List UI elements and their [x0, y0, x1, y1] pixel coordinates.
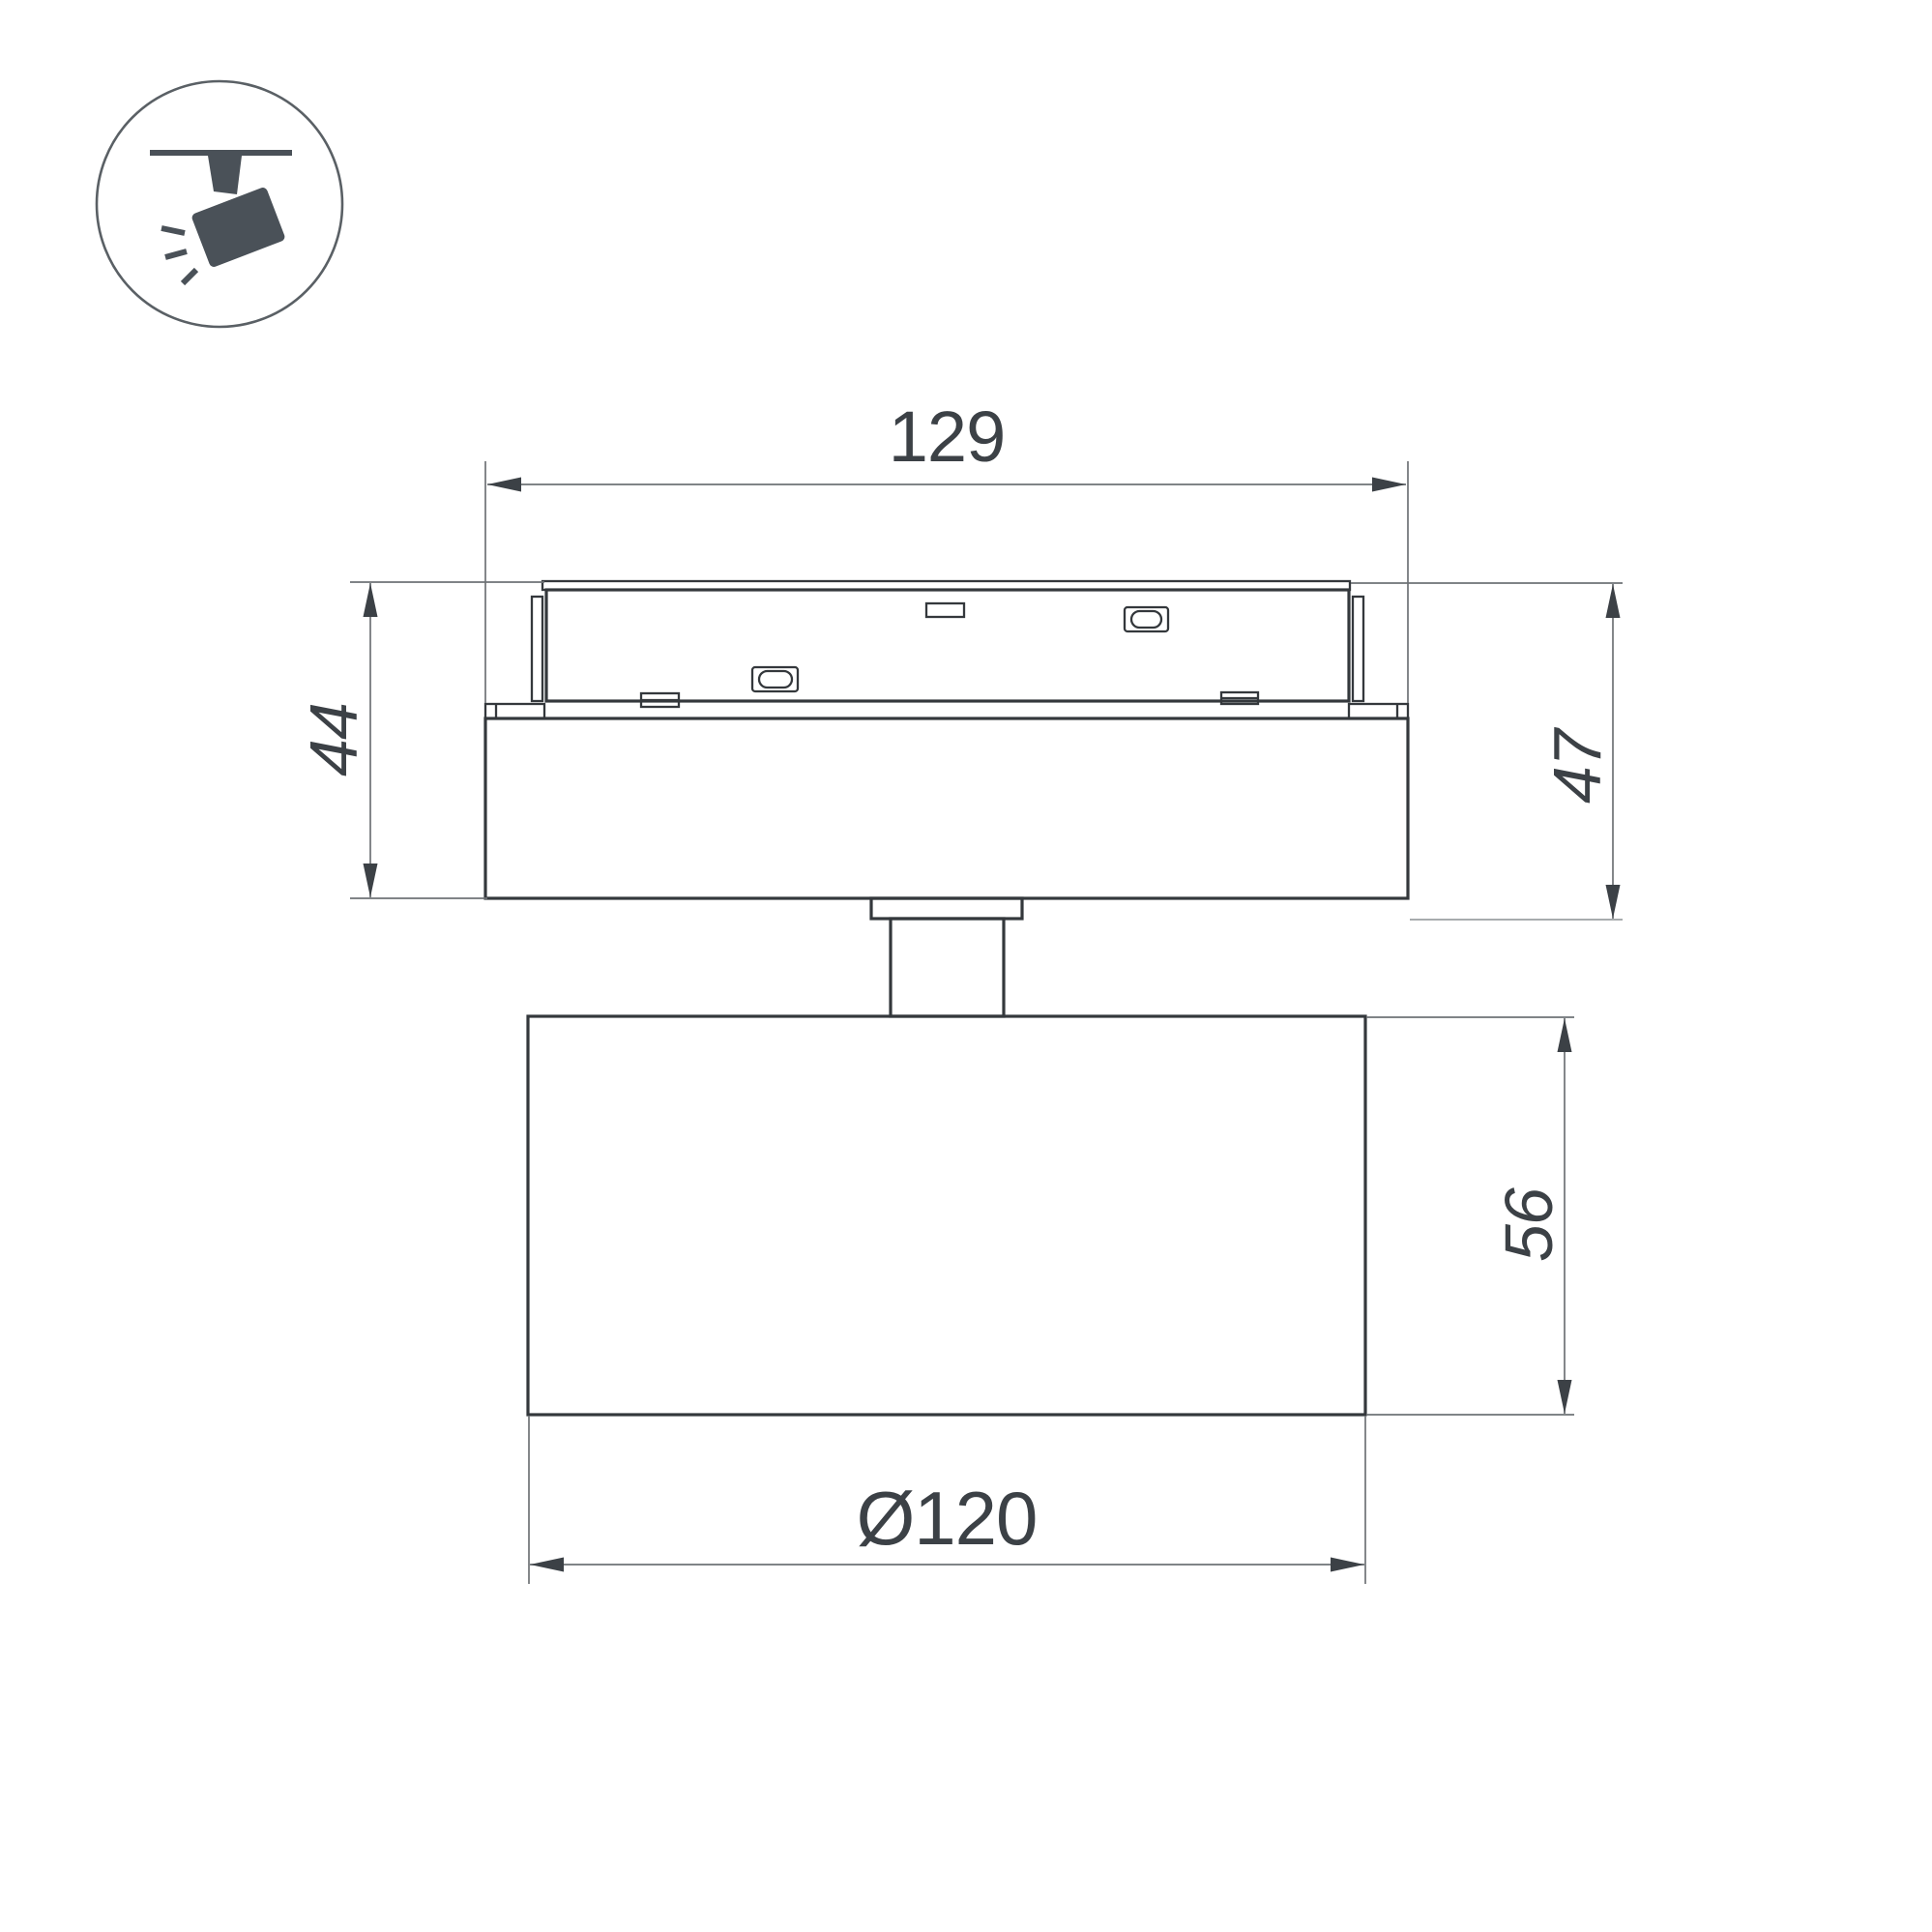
- adapter-end-plate-left: [532, 597, 542, 701]
- joint-stem: [891, 919, 1004, 1016]
- lamp-body: [528, 1016, 1365, 1415]
- joint-flange: [871, 898, 1022, 919]
- dim-body-height: 56: [1366, 1017, 1574, 1415]
- arrow-right: [1331, 1558, 1364, 1572]
- drawing-canvas: 129 44 47 56 Ø120: [0, 0, 1932, 1932]
- adapter-end-plate-right: [1353, 597, 1363, 701]
- arrow-down: [1606, 885, 1621, 919]
- base-housing-body: [485, 718, 1408, 898]
- arrow-right: [1372, 478, 1406, 492]
- dim-label-body-height: 56: [1491, 1187, 1566, 1262]
- dim-label-body-diameter: Ø120: [857, 1476, 1038, 1561]
- dim-track-width: 129: [485, 396, 1408, 703]
- adapter-base-housing: [485, 704, 1408, 898]
- arrow-up: [1606, 584, 1621, 618]
- adapter-driver-box: [546, 590, 1349, 701]
- slot-vent-left: [641, 693, 679, 707]
- arrow-up: [364, 583, 378, 617]
- dim-label-adapter-height: 44: [296, 703, 371, 776]
- track-spotlight-icon: [97, 81, 342, 327]
- mount-step-left: [485, 704, 544, 718]
- swivel-joint: [871, 898, 1022, 1016]
- arrow-down: [1558, 1380, 1572, 1414]
- adapter-slots: [641, 603, 1258, 707]
- fixture-side-view: [485, 581, 1408, 1415]
- arrow-left: [487, 478, 521, 492]
- dim-total-height: 47: [1351, 583, 1623, 920]
- arrow-up: [1558, 1018, 1572, 1052]
- track-adapter: [485, 581, 1408, 898]
- mount-step-right: [1349, 704, 1408, 718]
- dim-body-diameter: Ø120: [529, 1416, 1365, 1584]
- slot-rounded-right: [1125, 607, 1168, 631]
- dim-label-track-width: 129: [889, 396, 1005, 477]
- icon-track-bar: [150, 150, 292, 156]
- dim-label-total-height: 47: [1539, 726, 1615, 804]
- arrow-down: [364, 864, 378, 897]
- dimension-drawing: 129 44 47 56 Ø120: [0, 0, 1932, 1932]
- slot-rounded-left: [752, 667, 798, 691]
- dim-adapter-height: 44: [296, 582, 544, 898]
- arrow-left: [530, 1558, 564, 1572]
- slot-rect: [926, 603, 964, 617]
